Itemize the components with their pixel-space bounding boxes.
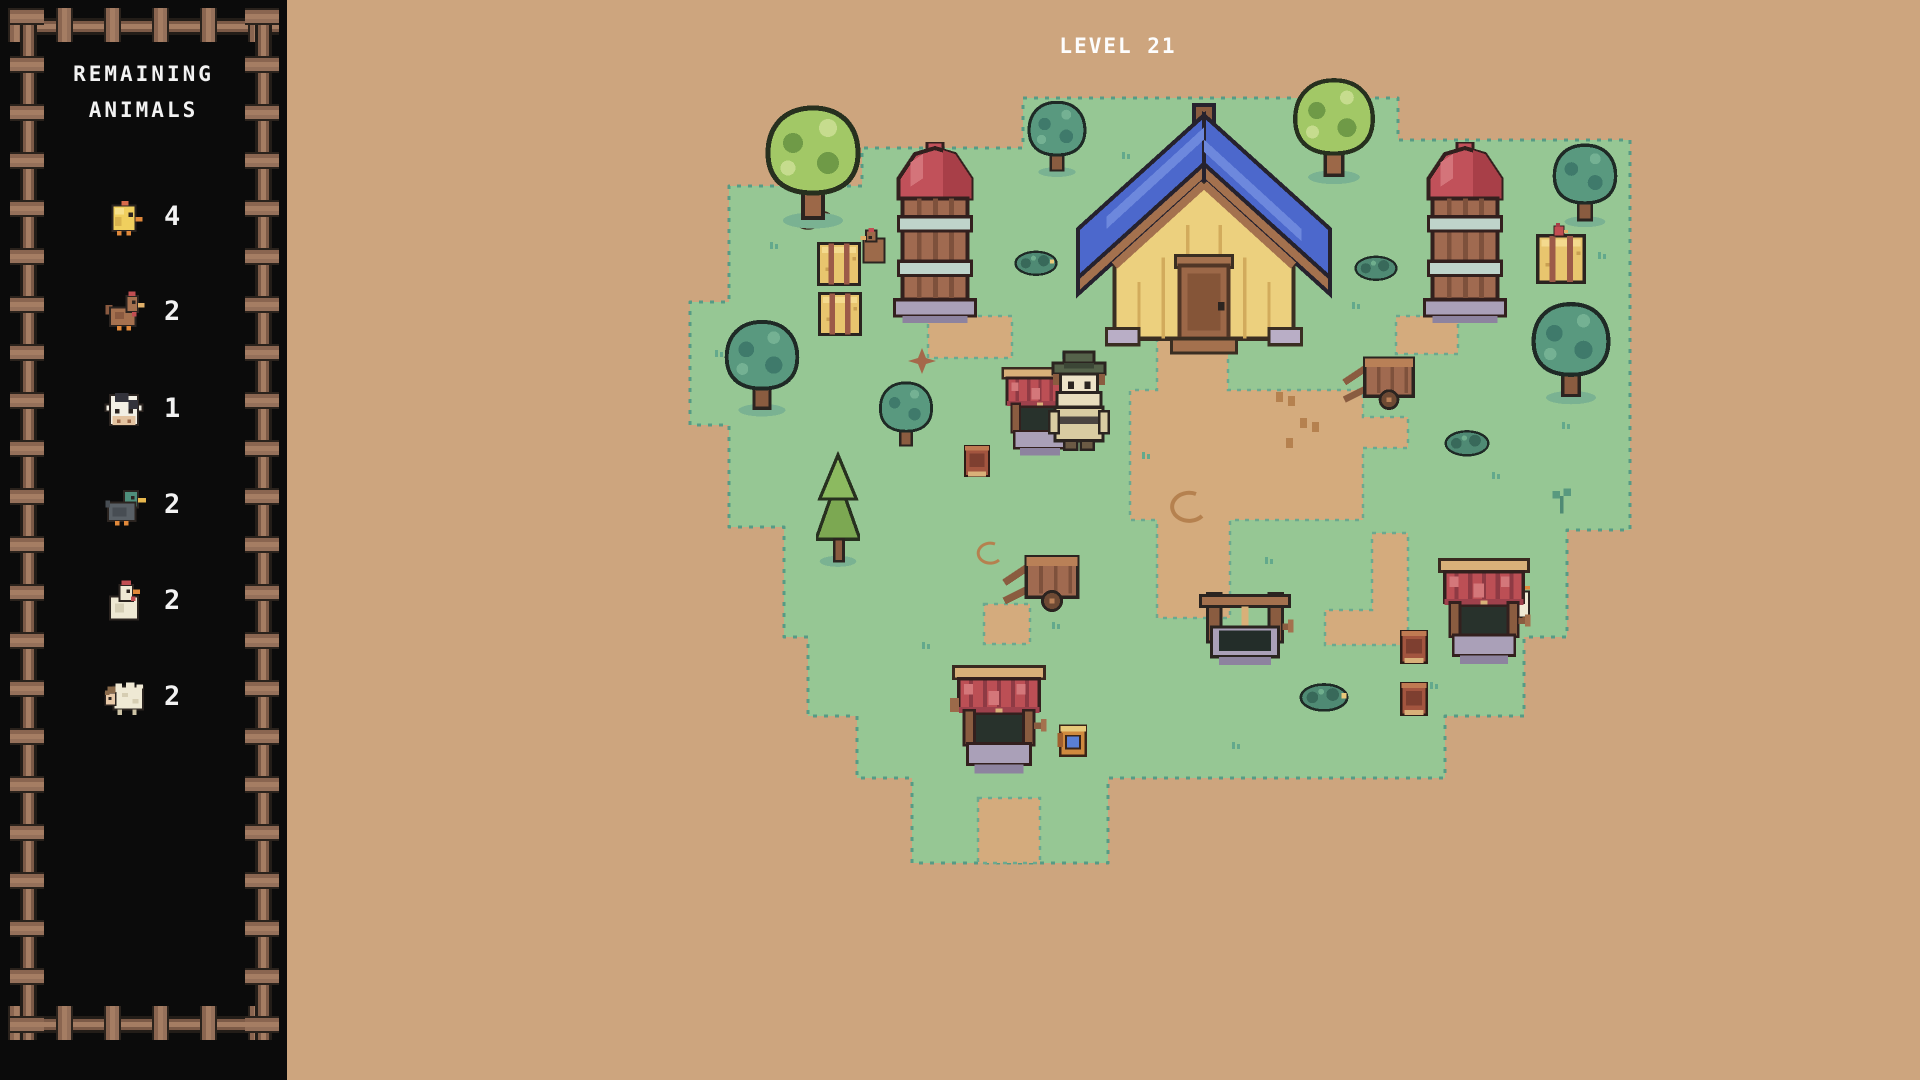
animal-count: 2 [164, 674, 214, 720]
silo-right[interactable] [1416, 142, 1514, 324]
game-screen: LEVEL 21 [0, 0, 1920, 1080]
chicken-icon [101, 289, 147, 335]
tree-light-big[interactable] [763, 103, 863, 233]
animal-row-hen: 2 [0, 578, 287, 624]
bush-left-of-barn[interactable] [1013, 245, 1059, 279]
book-crate[interactable] [962, 443, 992, 479]
panel-frame-top [8, 8, 279, 42]
crate-2[interactable] [1398, 680, 1430, 718]
well-open-center[interactable] [1196, 586, 1294, 668]
animal-row-chick: 4 [0, 194, 287, 240]
dirt-path-tail [978, 798, 1040, 863]
hen-icon [101, 578, 147, 624]
animal-count: 2 [164, 482, 214, 528]
bush-bottom[interactable] [1298, 676, 1350, 716]
farmer[interactable] [1042, 340, 1116, 460]
panel-title-line2: ANIMALS [0, 92, 287, 128]
duck-icon [101, 482, 147, 528]
animal-row-duck: 2 [0, 482, 287, 528]
tree-teal-right[interactable] [1528, 300, 1614, 408]
animal-count: 4 [164, 194, 214, 240]
bird-on-hay[interactable] [1552, 222, 1570, 238]
bush-right-of-barn[interactable] [1353, 250, 1399, 284]
animal-count: 2 [164, 289, 214, 335]
bush-right[interactable] [1443, 425, 1491, 459]
panel-title: REMAINING ANIMALS [0, 56, 287, 128]
sheep-icon [101, 674, 147, 720]
animal-row-chicken: 2 [0, 289, 287, 335]
hay-bale-right[interactable] [1534, 232, 1588, 286]
cart-right[interactable] [1340, 348, 1438, 410]
hay-bale-left-2[interactable] [814, 290, 866, 338]
cart-center[interactable] [998, 546, 1106, 612]
tree-teal-left[interactable] [722, 318, 802, 420]
silo-left[interactable] [886, 142, 984, 324]
animal-count: 2 [164, 578, 214, 624]
sprout [1548, 486, 1574, 516]
crate-1[interactable] [1398, 628, 1430, 666]
panel-title-line1: REMAINING [0, 56, 287, 92]
animal-row-cow: 1 [0, 386, 287, 432]
remaining-animals-panel: REMAINING ANIMALS 4 2 1 2 [0, 0, 287, 1080]
animal-count: 1 [164, 386, 214, 432]
pine-tree[interactable] [816, 448, 860, 572]
tree-teal-topright[interactable] [1551, 136, 1619, 236]
chick-icon [101, 194, 147, 240]
panel-frame-bottom [8, 1006, 279, 1040]
level-title: LEVEL 21 [1018, 34, 1218, 58]
animal-row-sheep: 2 [0, 674, 287, 720]
hay-bale-left-1[interactable] [814, 240, 864, 288]
well-red-right[interactable] [1436, 551, 1532, 671]
cow-icon [101, 386, 147, 432]
barn[interactable] [1073, 103, 1335, 355]
gold-box[interactable] [1056, 720, 1090, 760]
well-red-bottom[interactable] [950, 650, 1048, 788]
tree-teal-bushy[interactable] [876, 380, 936, 454]
